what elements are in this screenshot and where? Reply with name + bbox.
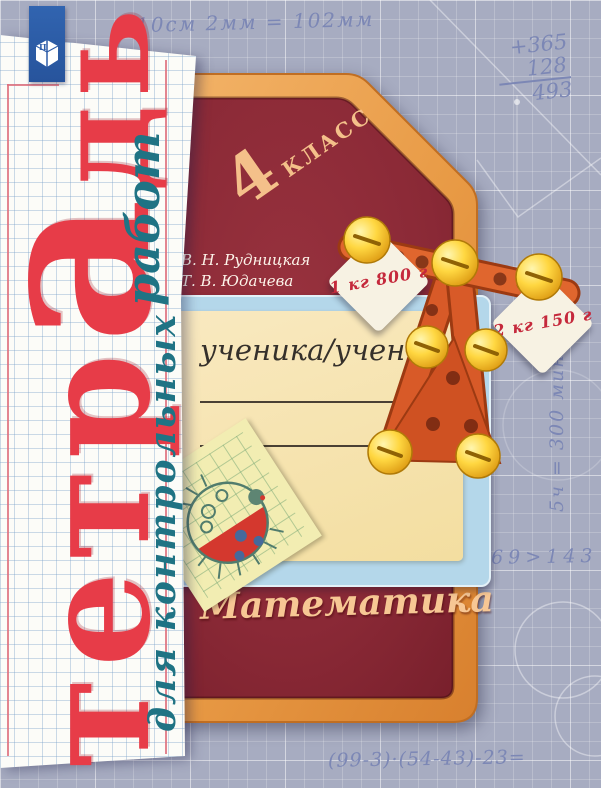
cover-subtitle-works: работ xyxy=(116,131,170,306)
publisher-logo-icon: П xyxy=(34,38,60,70)
bolt-icon xyxy=(344,217,562,478)
publisher-ribbon: П xyxy=(29,6,65,82)
publisher-logo-letter: П xyxy=(39,42,47,52)
cover-subtitle-for: для контрольных xyxy=(142,313,184,732)
book-cover: 10см 2мм = 102мм +365 128 493 5ч = 300 м… xyxy=(0,0,601,788)
